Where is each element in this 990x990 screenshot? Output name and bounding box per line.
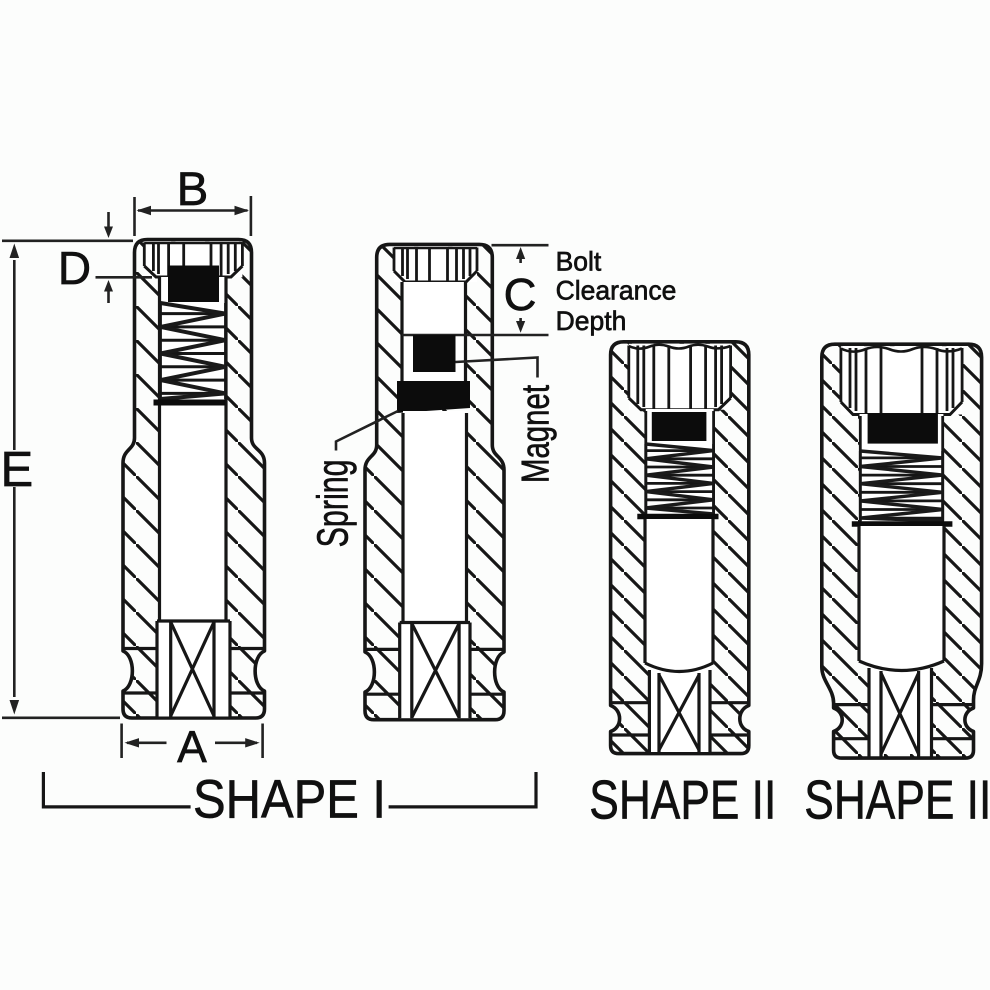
svg-text:A: A	[177, 723, 207, 772]
svg-text:SHAPE II: SHAPE II	[589, 769, 776, 831]
svg-text:Clearance: Clearance	[556, 276, 677, 306]
svg-text:D: D	[58, 242, 91, 294]
svg-text:Depth: Depth	[556, 306, 627, 336]
svg-text:Magnet: Magnet	[515, 385, 558, 483]
svg-text:Spring: Spring	[309, 459, 358, 547]
svg-text:SHAPE II: SHAPE II	[804, 769, 990, 831]
svg-text:SHAPE I: SHAPE I	[193, 770, 386, 830]
svg-text:B: B	[177, 163, 209, 216]
svg-text:E: E	[0, 443, 33, 497]
svg-text:Bolt: Bolt	[556, 247, 602, 277]
svg-text:C: C	[504, 269, 537, 320]
